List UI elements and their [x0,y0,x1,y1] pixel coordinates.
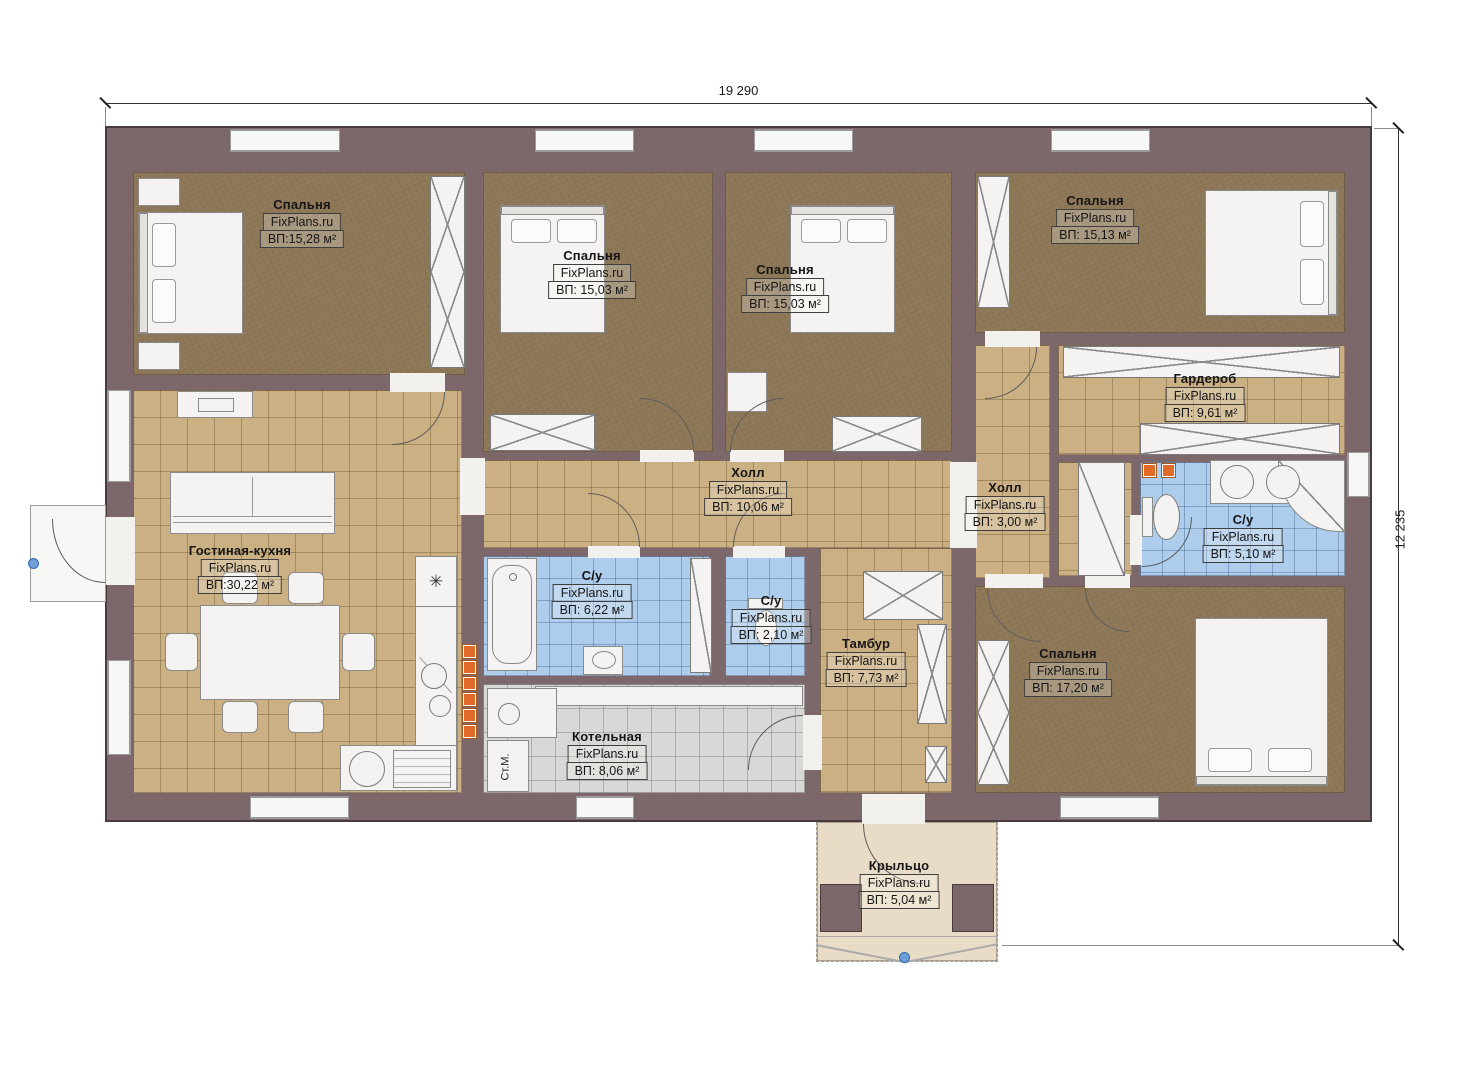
dimension-extension [1374,128,1398,129]
watermark: FixPlans.ru [263,213,342,231]
door-opening [733,546,785,558]
sink-basin-icon [1266,465,1300,499]
room-label-hall-small: Холл FixPlans.ru ВП: 3,00 м² [965,480,1046,531]
closet [977,176,1010,308]
closet [863,571,943,620]
kitchen-counter [340,745,457,791]
watermark: FixPlans.ru [1056,209,1135,227]
vent-icon [463,709,476,722]
room-area: ВП: 9,61 м² [1165,404,1246,422]
door-opening [803,715,822,770]
bed [1195,618,1328,786]
room-label-vestibule: Тамбур FixPlans.ru ВП: 7,73 м² [826,636,907,687]
watermark: FixPlans.ru [1204,528,1283,546]
room-area: ВП: 15,13 м² [1051,226,1139,244]
window [754,129,853,152]
room-label-bedroom-3: Спальня FixPlans.ru ВП: 15,03 м² [741,262,829,313]
room-label-bedroom-2: Спальня FixPlans.ru ВП: 15,03 м² [548,248,636,299]
kitchen-counter: ✳ [415,556,457,746]
room-area: ВП: 3,00 м² [965,513,1046,531]
kitchen-sink-icon [349,751,385,787]
porch-post [952,884,994,932]
door-opening [390,373,445,392]
chair [288,572,324,604]
floor-plan: 19 290 12 235 [0,0,1474,1080]
room-label-bedroom-5: Спальня FixPlans.ru ВП: 17,20 м² [1024,646,1112,697]
window [230,129,340,152]
watermark: FixPlans.ru [201,559,280,577]
room-label-boiler: Котельная FixPlans.ru ВП: 8,06 м² [567,729,648,780]
window [107,390,131,482]
room-area: ВП: 5,04 м² [859,891,940,909]
closet [832,416,922,452]
sink [583,646,623,675]
room-area: ВП:15,28 м² [260,230,344,248]
door-opening [862,794,925,824]
wardrobe-unit [1140,423,1340,455]
chair [288,701,324,733]
watermark: FixPlans.ru [553,584,632,602]
chair [342,633,375,671]
room-label-porch: Крыльцо FixPlans.ru ВП: 5,04 м² [859,858,940,909]
sink-basin-icon [1220,465,1254,499]
watermark: FixPlans.ru [553,264,632,282]
room-area: ВП: 10,06 м² [704,498,792,516]
watermark: FixPlans.ru [860,874,939,892]
room-area: ВП: 2,10 м² [731,626,812,644]
bathroom-cabinet [690,558,712,673]
room-area: ВП: 5,10 м² [1203,545,1284,563]
chair [165,633,198,671]
window [535,129,634,152]
door-opening [985,331,1040,347]
room-label-hall-main: Холл FixPlans.ru ВП: 10,06 м² [704,465,792,516]
entry-marker-icon [899,952,910,963]
dimension-height-label: 12 235 [1393,500,1408,560]
dining-table [200,605,340,700]
washing-machine-box: Ст.М. [487,740,529,792]
room-label-living-kitchen: Гостиная-кухня FixPlans.ru ВП:30,22 м² [189,543,291,594]
vent-icon [463,661,476,674]
closet [977,640,1010,785]
watermark: FixPlans.ru [732,609,811,627]
dimension-width-label: 19 290 [105,83,1372,98]
dimension-extension [1002,945,1398,946]
dimension-extension [1371,107,1372,126]
sofa [170,472,335,534]
washing-machine-label: Ст.М. [500,753,512,780]
door-opening [985,574,1043,588]
entry-marker-icon [28,558,39,569]
closet [917,624,947,724]
window [107,660,131,755]
room-area: ВП: 8,06 м² [567,762,648,780]
passage-living-hall [460,458,485,515]
cooktop-icon: ✳ [416,573,456,590]
watermark: FixPlans.ru [1166,387,1245,405]
vent-icon [463,677,476,690]
room-label-wardrobe: Гардероб FixPlans.ru ВП: 9,61 м² [1165,371,1246,422]
watermark: FixPlans.ru [709,481,788,499]
stove-burner-icon [429,695,451,717]
tv-cabinet [177,391,253,418]
room-area: ВП: 7,73 м² [826,669,907,687]
room-label-bathroom-master: С/у FixPlans.ru ВП: 5,10 м² [1203,512,1284,563]
watermark: FixPlans.ru [568,745,647,763]
door-opening [588,546,640,558]
closet [925,746,947,783]
stove-burner-icon [421,663,447,689]
vent-icon [1143,464,1156,477]
porch-post [820,884,862,932]
porch-step-line [816,936,998,937]
door-opening [105,517,135,585]
washing-machine [487,688,557,738]
watermark: FixPlans.ru [1029,662,1108,680]
closet [490,414,595,451]
room-label-bedroom-1: Спальня FixPlans.ru ВП:15,28 м² [260,197,344,248]
chair [222,701,258,733]
dishwasher [393,750,451,788]
door-opening [1085,574,1130,588]
watermark: FixPlans.ru [746,278,825,296]
room-area: ВП: 15,03 м² [548,281,636,299]
window [1347,452,1370,497]
room-area: ВП: 17,20 м² [1024,679,1112,697]
watermark: FixPlans.ru [827,652,906,670]
room-label-bedroom-4: Спальня FixPlans.ru ВП: 15,13 м² [1051,193,1139,244]
window [1060,796,1159,819]
vent-icon [463,645,476,658]
nightstand [138,342,180,370]
window [576,796,634,819]
room-label-bathroom-guest: С/у FixPlans.ru ВП: 2,10 м² [731,593,812,644]
bed [138,212,243,334]
dimension-extension [105,107,106,126]
vent-icon [463,725,476,738]
window [250,796,349,819]
bathtub [487,558,537,671]
nightstand [138,178,180,206]
watermark: FixPlans.ru [966,496,1045,514]
room-label-bathroom-main: С/у FixPlans.ru ВП: 6,22 м² [552,568,633,619]
window [1051,129,1150,152]
bed [1205,190,1338,316]
boiler-counter [535,686,803,706]
room-area: ВП:30,22 м² [198,576,282,594]
door-opening [1130,515,1142,565]
toilet [1153,494,1180,540]
vent-icon [463,693,476,706]
closet [1078,462,1125,576]
room-area: ВП: 6,22 м² [552,601,633,619]
vent-icon [1162,464,1175,477]
dimension-width-line [105,103,1372,104]
closet [430,176,465,368]
room-area: ВП: 15,03 м² [741,295,829,313]
